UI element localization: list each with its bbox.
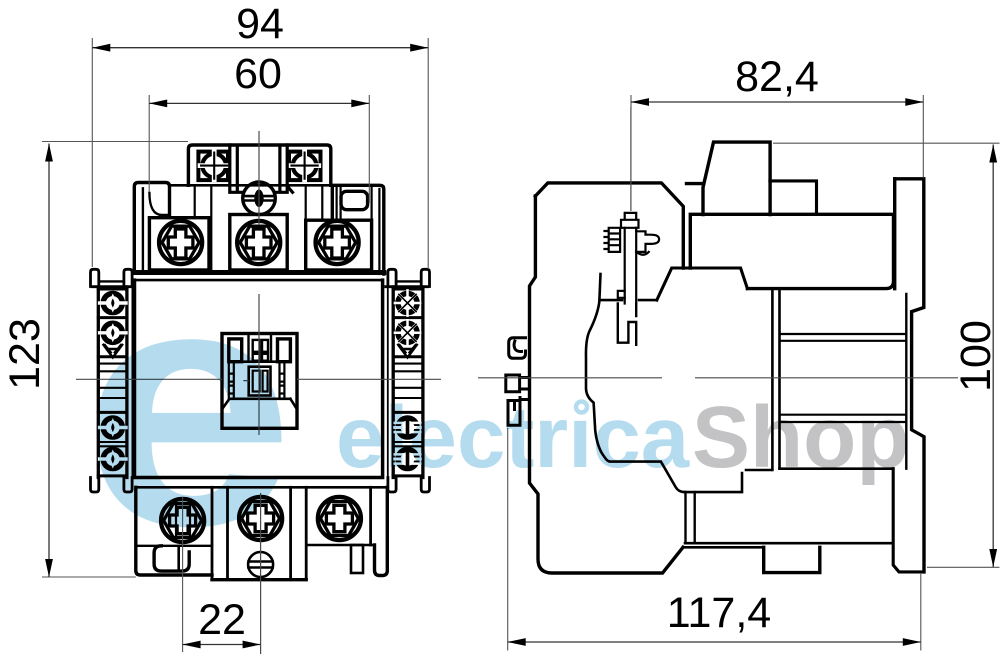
svg-text:22: 22 [198,596,246,644]
svg-text:60: 60 [234,50,282,98]
svg-text:123: 123 [1,318,49,390]
svg-text:94: 94 [236,0,284,48]
svg-text:117,4: 117,4 [667,589,771,637]
svg-text:electrıca: electrıca [336,389,690,486]
svg-text:e: e [82,214,295,597]
svg-text:Shop: Shop [692,389,909,486]
svg-text:100: 100 [952,320,1000,392]
svg-text:82,4: 82,4 [735,53,819,101]
